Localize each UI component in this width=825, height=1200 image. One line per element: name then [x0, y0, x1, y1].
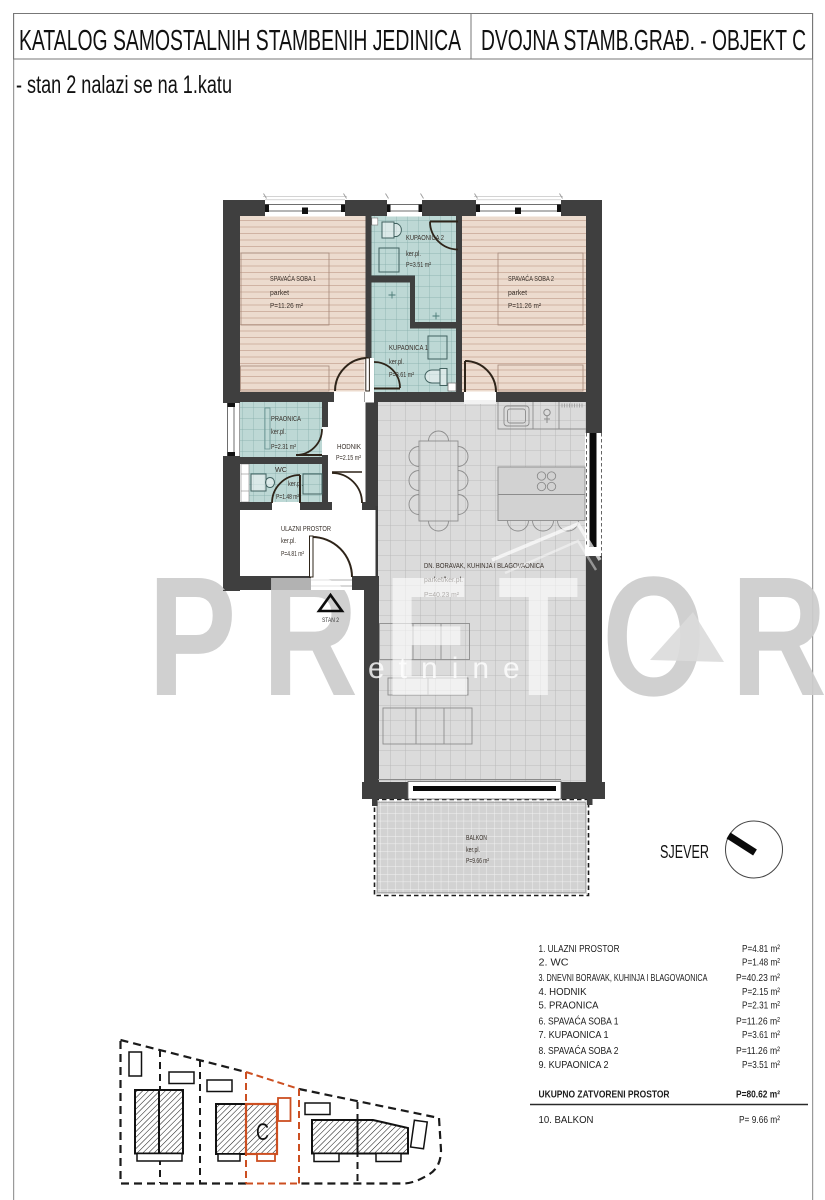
- svg-text:5. PRAONICA: 5. PRAONICA: [539, 1000, 599, 1012]
- svg-text:ULAZNI PROSTOR: ULAZNI PROSTOR: [281, 524, 331, 533]
- svg-text:P=2.15 m²: P=2.15 m²: [742, 986, 780, 998]
- svg-text:8. SPAVAĆA SOBA 2: 8. SPAVAĆA SOBA 2: [539, 1044, 619, 1057]
- svg-text:SPAVAĆA SOBA 1: SPAVAĆA SOBA 1: [270, 274, 316, 283]
- svg-text:P=2.31 m²: P=2.31 m²: [742, 1000, 780, 1012]
- svg-text:9. KUPAONICA 2: 9. KUPAONICA 2: [539, 1059, 609, 1071]
- svg-text:KUPAONICA 1: KUPAONICA 1: [389, 343, 428, 352]
- svg-text:BALKON: BALKON: [466, 833, 487, 842]
- svg-text:2. WC: 2. WC: [539, 957, 569, 969]
- svg-text:P=11.26 m²: P=11.26 m²: [736, 1045, 780, 1057]
- svg-text:P= 9.66 m²: P= 9.66 m²: [739, 1114, 780, 1126]
- svg-text:P=11.26 m²: P=11.26 m²: [270, 301, 303, 310]
- svg-text:1. ULAZNI PROSTOR: 1. ULAZNI PROSTOR: [539, 943, 620, 955]
- svg-text:SJEVER: SJEVER: [660, 842, 709, 862]
- svg-text:ker.pl.: ker.pl.: [389, 357, 404, 366]
- svg-text:ker.pl.: ker.pl.: [406, 249, 421, 258]
- svg-text:parket: parket: [270, 288, 290, 297]
- svg-text:P=3.51 m²: P=3.51 m²: [406, 260, 431, 269]
- svg-text:10. BALKON: 10. BALKON: [539, 1114, 594, 1126]
- svg-text:- stan 2 nalazi se na 1.katu: - stan 2 nalazi se na 1.katu: [16, 71, 232, 99]
- svg-text:P=1.48 m²: P=1.48 m²: [742, 957, 780, 969]
- svg-text:P=3.61 m²: P=3.61 m²: [742, 1029, 780, 1041]
- svg-text:P=4.81 m²: P=4.81 m²: [742, 943, 780, 955]
- svg-text:P=11.26 m²: P=11.26 m²: [736, 1016, 780, 1028]
- svg-text:P=2.31 m²: P=2.31 m²: [271, 442, 296, 451]
- svg-text:7. KUPAONICA 1: 7. KUPAONICA 1: [539, 1029, 609, 1041]
- svg-text:4. HODNIK: 4. HODNIK: [539, 986, 587, 998]
- svg-text:P=80.62 m²: P=80.62 m²: [736, 1089, 780, 1101]
- svg-text:P=3.61 m²: P=3.61 m²: [389, 370, 414, 379]
- svg-text:PRAONICA: PRAONICA: [271, 414, 301, 423]
- svg-text:KATALOG SAMOSTALNIH STAMBENIH: KATALOG SAMOSTALNIH STAMBENIH JEDINICA: [19, 25, 461, 57]
- svg-text:P=40.23 m²: P=40.23 m²: [736, 972, 780, 984]
- svg-text:STAN 2: STAN 2: [322, 617, 339, 624]
- svg-text:parket: parket: [508, 288, 528, 297]
- svg-text:ker.pl.: ker.pl.: [288, 479, 303, 488]
- svg-text:ker.pl.: ker.pl.: [466, 845, 480, 854]
- svg-text:KUPAONICA 2: KUPAONICA 2: [406, 233, 444, 242]
- svg-text:P=1.48 m²: P=1.48 m²: [276, 492, 299, 501]
- svg-text:SPAVAĆA SOBA 2: SPAVAĆA SOBA 2: [508, 274, 554, 283]
- svg-text:P=11.26 m²: P=11.26 m²: [508, 301, 541, 310]
- svg-text:ker.pl.: ker.pl.: [271, 427, 286, 436]
- svg-text:DVOJNA STAMB.GRAĐ. - OBJEKT C: DVOJNA STAMB.GRAĐ. - OBJEKT C: [481, 25, 806, 57]
- svg-text:etnine: etnine: [368, 652, 534, 685]
- svg-text:P=3.51 m²: P=3.51 m²: [742, 1059, 780, 1071]
- svg-text:UKUPNO ZATVORENI PROSTOR: UKUPNO ZATVORENI PROSTOR: [539, 1089, 670, 1101]
- svg-text:P=9.66 m²: P=9.66 m²: [466, 856, 489, 865]
- svg-text:HODNIK: HODNIK: [337, 442, 361, 451]
- svg-text:6. SPAVAĆA SOBA 1: 6. SPAVAĆA SOBA 1: [539, 1015, 619, 1028]
- svg-text:3. DNEVNI BORAVAK, KUHINJA I B: 3. DNEVNI BORAVAK, KUHINJA I BLAGOVAONIC…: [539, 972, 708, 984]
- svg-text:WC: WC: [275, 465, 288, 474]
- svg-text:C: C: [256, 1119, 269, 1146]
- svg-text:P=2.15 m²: P=2.15 m²: [336, 453, 361, 462]
